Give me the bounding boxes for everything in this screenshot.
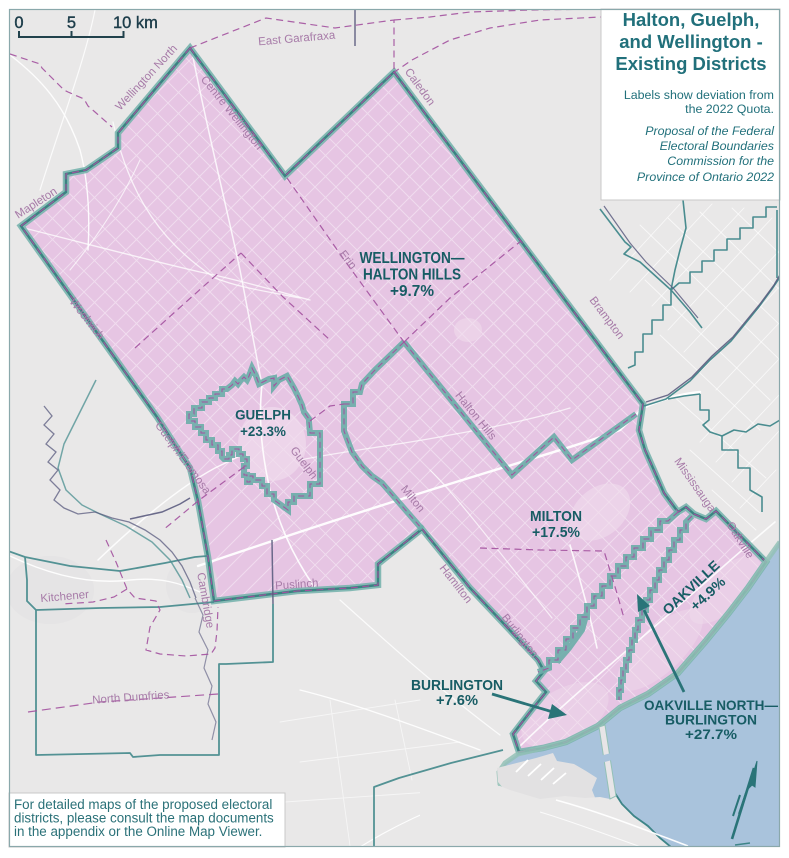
svg-text:WELLINGTON—: WELLINGTON— bbox=[360, 250, 465, 267]
svg-text:+9.7%: +9.7% bbox=[390, 283, 434, 300]
svg-text:5: 5 bbox=[67, 14, 76, 32]
svg-text:10 km: 10 km bbox=[113, 14, 158, 32]
svg-text:Existing Districts: Existing Districts bbox=[615, 53, 766, 74]
svg-text:+23.3%: +23.3% bbox=[240, 424, 286, 439]
svg-text:Province of Ontario 2022: Province of Ontario 2022 bbox=[637, 170, 774, 184]
svg-text:and Wellington -: and Wellington - bbox=[619, 31, 763, 52]
svg-text:in the appendix or the Online: in the appendix or the Online Map Viewer… bbox=[14, 824, 262, 839]
svg-text:Proposal of the Federal: Proposal of the Federal bbox=[645, 124, 775, 138]
svg-text:Labels show deviation from: Labels show deviation from bbox=[624, 88, 774, 102]
svg-text:+7.6%: +7.6% bbox=[436, 692, 478, 709]
svg-text:the 2022 Quota.: the 2022 Quota. bbox=[685, 102, 774, 116]
svg-text:+17.5%: +17.5% bbox=[532, 524, 580, 541]
svg-text:Commission for the: Commission for the bbox=[667, 154, 774, 168]
svg-text:Electoral Boundaries: Electoral Boundaries bbox=[660, 139, 774, 153]
svg-text:Halton, Guelph,: Halton, Guelph, bbox=[623, 9, 760, 30]
svg-text:HALTON HILLS: HALTON HILLS bbox=[363, 267, 461, 284]
svg-text:MILTON: MILTON bbox=[530, 508, 582, 525]
svg-text:+27.7%: +27.7% bbox=[685, 726, 738, 742]
svg-text:GUELPH: GUELPH bbox=[235, 408, 291, 423]
svg-text:0: 0 bbox=[14, 14, 23, 32]
